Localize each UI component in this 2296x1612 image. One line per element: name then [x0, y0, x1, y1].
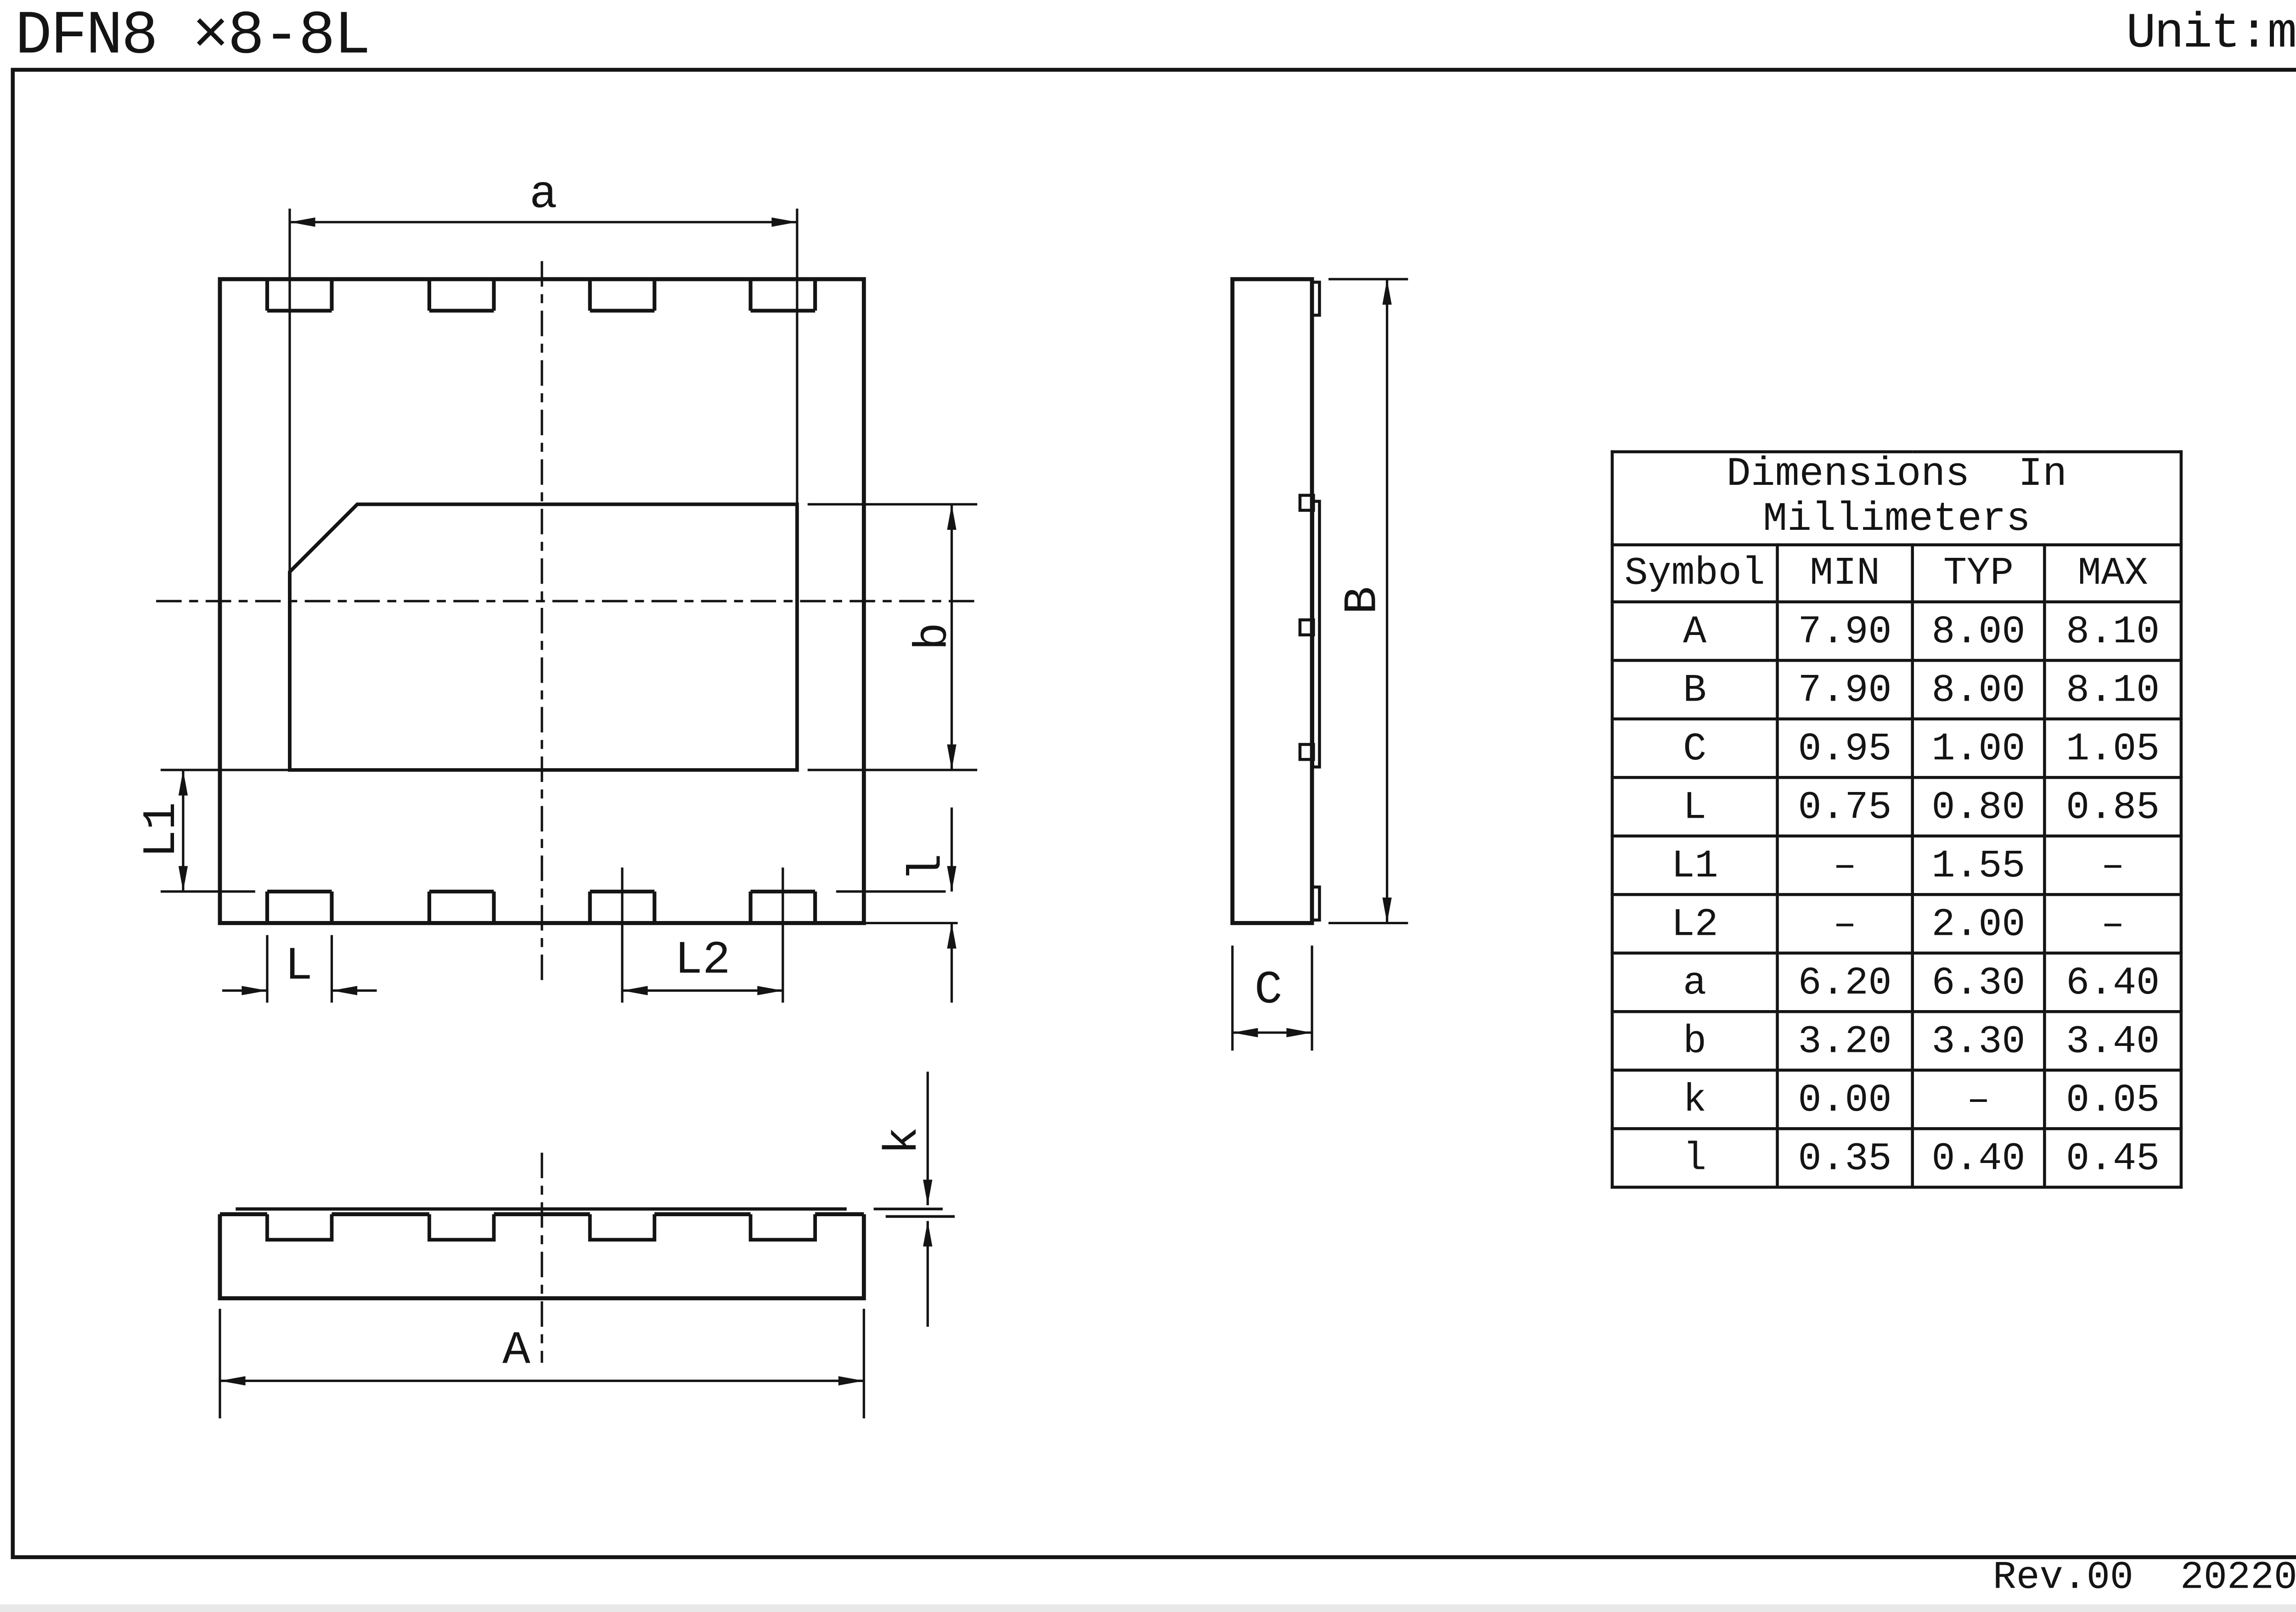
- cell-max: –: [2044, 895, 2181, 954]
- dim-label-l: l: [901, 854, 954, 882]
- cell-typ: –: [1913, 1071, 2045, 1129]
- dim-label-B: B: [1337, 586, 1389, 614]
- side-view: [1232, 279, 1408, 1050]
- side-body-outline: [1232, 279, 1312, 923]
- side-lead-top: [1312, 282, 1319, 315]
- drawing-sheet: DFN8 ×8-8L Unit:mm Rev.00 202207: [0, 0, 2296, 1605]
- dim-label-C: C: [1255, 965, 1283, 1017]
- table-title-line1: Dimensions In: [1614, 453, 2180, 499]
- cell-min: 3.20: [1777, 1012, 1912, 1071]
- cell-typ: 1.00: [1913, 719, 2045, 778]
- table-row: L2 – 2.00 –: [1612, 895, 2181, 954]
- dim-label-A: A: [502, 1325, 530, 1377]
- header-symbol: Symbol: [1612, 545, 1778, 602]
- cell-typ: 1.55: [1913, 837, 2045, 895]
- table-header-row: Symbol MIN TYP MAX: [1612, 545, 2181, 602]
- cell-min: 0.35: [1777, 1129, 1912, 1188]
- cell-max: 8.10: [2044, 602, 2181, 661]
- exposed-pad-outline: [290, 504, 797, 770]
- cell-symbol: A: [1612, 602, 1778, 661]
- dim-l-extension-lines: [836, 892, 958, 923]
- sheet-title: DFN8 ×8-8L: [15, 3, 370, 72]
- header-min: MIN: [1777, 545, 1912, 602]
- cell-max: 6.40: [2044, 954, 2181, 1012]
- dim-a-extension-lines: [290, 208, 797, 572]
- cell-max: 1.05: [2044, 719, 2181, 778]
- table-row: A 7.90 8.00 8.10: [1612, 602, 2181, 661]
- cell-max: 0.85: [2044, 778, 2181, 837]
- dim-k-extension-lines: [874, 1209, 955, 1216]
- table-row: b 3.20 3.30 3.40: [1612, 1012, 2181, 1071]
- cell-typ: 3.30: [1913, 1012, 2045, 1071]
- cell-max: 3.40: [2044, 1012, 2181, 1071]
- header-max: MAX: [2044, 545, 2181, 602]
- dimension-labels: a b L1 L L2 l B C k A: [136, 169, 1389, 1377]
- cell-symbol: B: [1612, 661, 1778, 719]
- cell-typ: 0.80: [1913, 778, 2045, 837]
- header-typ: TYP: [1913, 545, 2045, 602]
- dim-label-k: k: [878, 1127, 930, 1155]
- cell-symbol: l: [1612, 1129, 1778, 1188]
- cell-typ: 0.40: [1913, 1129, 2045, 1188]
- cell-min: 0.95: [1777, 719, 1912, 778]
- table-row: l 0.35 0.40 0.45: [1612, 1129, 2181, 1188]
- dim-label-a: a: [529, 169, 557, 221]
- cell-typ: 8.00: [1913, 661, 2045, 719]
- cell-typ: 2.00: [1913, 895, 2045, 954]
- cell-symbol: L1: [1612, 837, 1778, 895]
- table-title-cell: Dimensions In Millimeters: [1612, 452, 2181, 545]
- table-row: L 0.75 0.80 0.85: [1612, 778, 2181, 837]
- table-row: k 0.00 – 0.05: [1612, 1071, 2181, 1129]
- table-title-line2: Millimeters: [1614, 499, 2180, 544]
- dim-label-b: b: [907, 623, 960, 651]
- cell-max: 0.45: [2044, 1129, 2181, 1188]
- cell-min: –: [1777, 895, 1912, 954]
- cell-symbol: L2: [1612, 895, 1778, 954]
- cell-min: 7.90: [1777, 602, 1912, 661]
- cell-typ: 6.30: [1913, 954, 2045, 1012]
- cell-min: 7.90: [1777, 661, 1912, 719]
- top-view: [156, 208, 977, 1002]
- unit-note: Unit:mm: [2126, 6, 2296, 62]
- dim-label-L1: L1: [136, 802, 188, 858]
- cell-max: 0.05: [2044, 1071, 2181, 1129]
- table-row: C 0.95 1.00 1.05: [1612, 719, 2181, 778]
- revision-note: Rev.00 202207: [1993, 1555, 2296, 1600]
- cell-symbol: C: [1612, 719, 1778, 778]
- cell-symbol: b: [1612, 1012, 1778, 1071]
- cell-symbol: L: [1612, 778, 1778, 837]
- side-lead-bottom: [1312, 887, 1319, 920]
- cell-symbol: k: [1612, 1071, 1778, 1129]
- cell-min: 6.20: [1777, 954, 1912, 1012]
- cell-max: –: [2044, 837, 2181, 895]
- cell-min: 0.75: [1777, 778, 1912, 837]
- cell-typ: 8.00: [1913, 602, 2045, 661]
- cell-min: 0.00: [1777, 1071, 1912, 1129]
- dimensions-table: Dimensions In Millimeters Symbol MIN TYP…: [1611, 450, 2183, 1190]
- table-row: a 6.20 6.30 6.40: [1612, 954, 2181, 1012]
- table-row: B 7.90 8.00 8.10: [1612, 661, 2181, 719]
- table-title-row: Dimensions In Millimeters: [1612, 452, 2181, 545]
- cell-max: 8.10: [2044, 661, 2181, 719]
- front-view: [220, 1072, 955, 1418]
- dim-label-L: L: [285, 940, 313, 993]
- dim-label-L2: L2: [675, 934, 731, 987]
- cell-symbol: a: [1612, 954, 1778, 1012]
- cell-min: –: [1777, 837, 1912, 895]
- table-row: L1 – 1.55 –: [1612, 837, 2181, 895]
